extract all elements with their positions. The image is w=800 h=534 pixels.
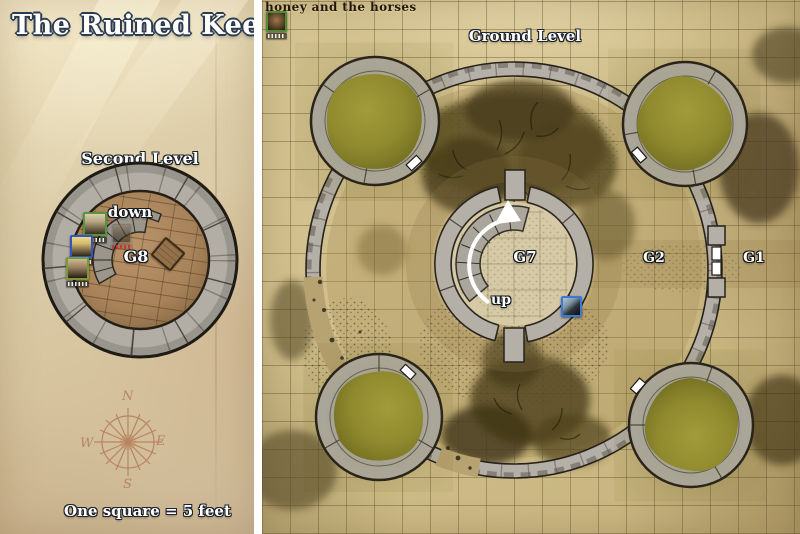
ground-level-panel: honey and the horses Ground Level G7 up …: [262, 0, 800, 534]
token-nameplate: [66, 281, 89, 287]
compass-rose: N W E S: [78, 386, 183, 491]
compass-north: N: [121, 389, 134, 404]
stairs-down-label: down: [104, 203, 156, 221]
ground-level-label: Ground Level: [460, 27, 590, 45]
tower-southwest: [316, 354, 442, 480]
tower-northwest: [311, 57, 439, 185]
page-title: The Ruined Keep: [12, 10, 252, 41]
pc-token-3[interactable]: [66, 257, 89, 280]
faded-npc-token[interactable]: [112, 224, 131, 243]
compass-east: E: [155, 434, 166, 449]
stairs-up-label: up: [484, 292, 518, 308]
room-g7-label: G7: [506, 248, 544, 266]
ruined-keep-map-page: The Ruined Keep Second Level: [0, 0, 800, 534]
south-wall-stub: [504, 328, 524, 362]
north-wall-stub: [505, 170, 525, 200]
corner-creature-token[interactable]: [266, 11, 287, 32]
ground-level-map[interactable]: [262, 0, 800, 534]
area-g1-label: G1: [736, 250, 772, 266]
second-level-panel: The Ruined Keep Second Level: [0, 0, 254, 534]
compass-west: W: [80, 436, 95, 451]
area-g2-label: G2: [636, 250, 672, 266]
tower-cover-nw: [327, 74, 422, 169]
tower-southeast: [629, 363, 753, 487]
room-g8-label: G8: [116, 247, 156, 266]
pc-token-2[interactable]: [70, 235, 93, 258]
campaign-header-label: honey and the horses: [265, 0, 417, 14]
compass-south: S: [123, 477, 132, 491]
raven-token[interactable]: [561, 296, 582, 317]
token-nameplate: [266, 33, 287, 39]
scale-label: One square = 5 feet: [64, 502, 231, 520]
